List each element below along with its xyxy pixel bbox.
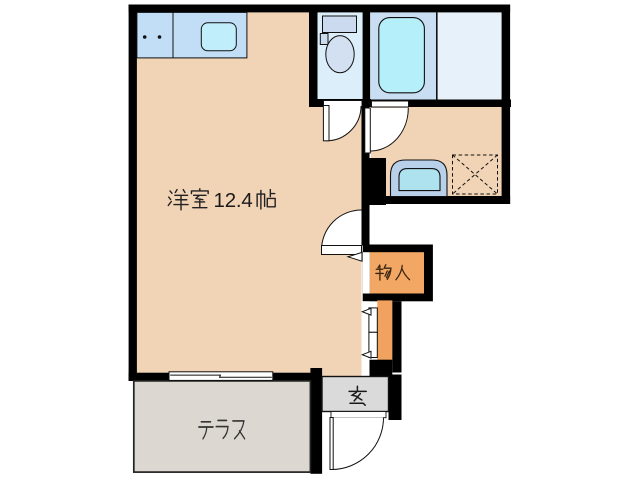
svg-text:12.4: 12.4 [214, 189, 253, 212]
